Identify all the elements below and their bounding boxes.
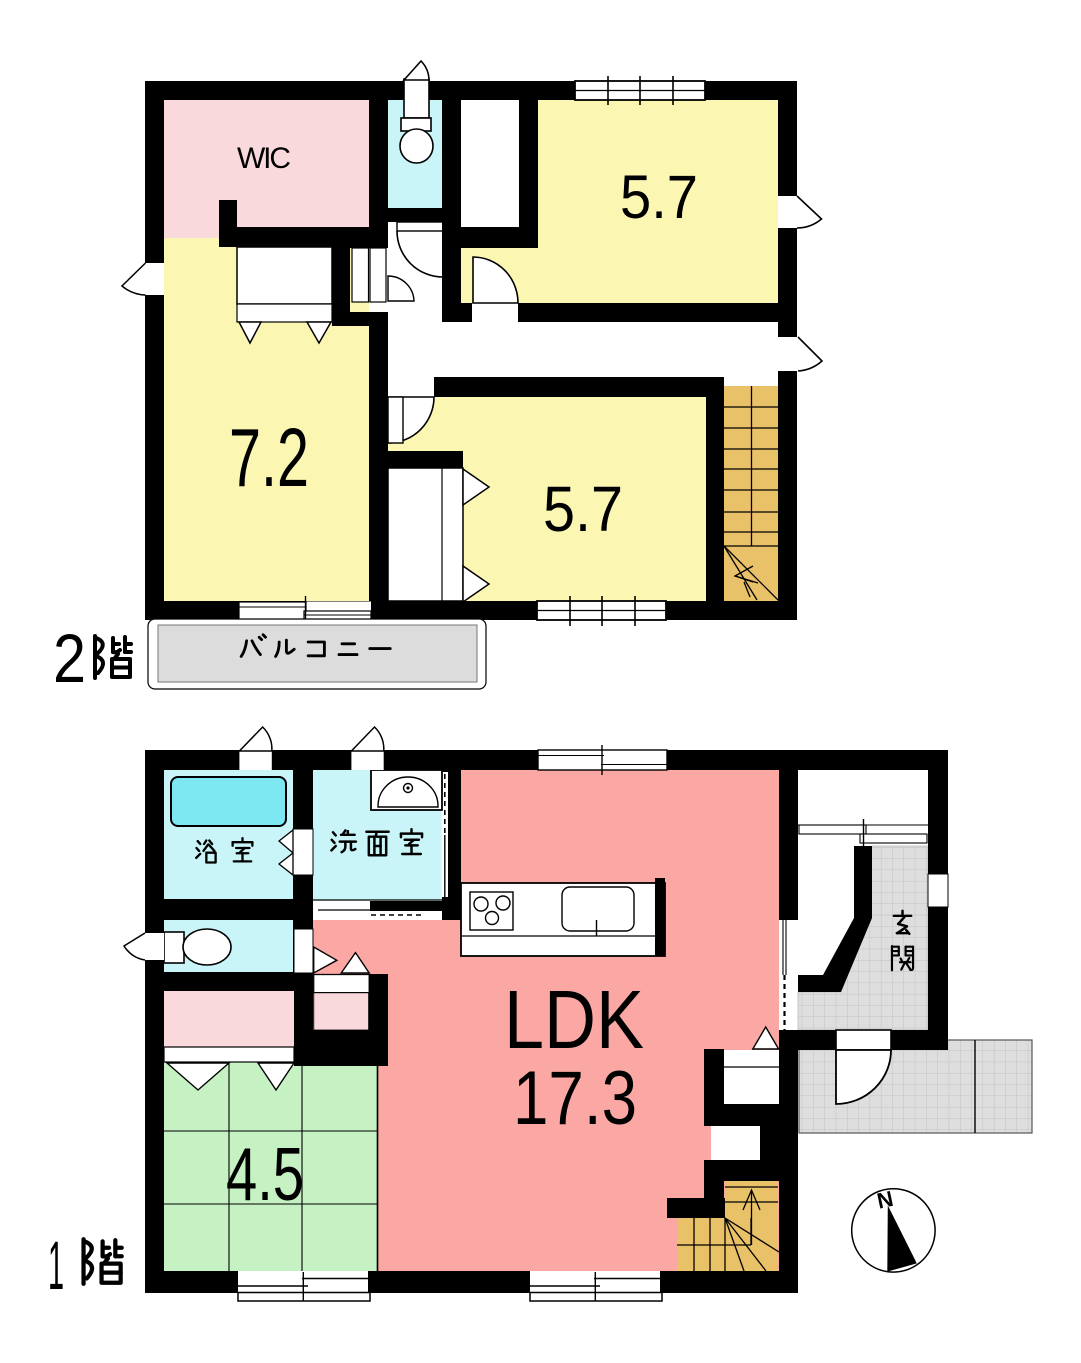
svg-text:1: 1 xyxy=(48,1227,64,1304)
svg-text:LDK: LDK xyxy=(504,973,644,1066)
svg-text:2: 2 xyxy=(53,620,86,697)
svg-text:7.2: 7.2 xyxy=(229,411,309,504)
svg-text:5.7: 5.7 xyxy=(620,163,698,231)
svg-text:WIC: WIC xyxy=(237,142,291,175)
svg-text:4.5: 4.5 xyxy=(226,1132,304,1216)
svg-text:5.7: 5.7 xyxy=(543,473,623,545)
svg-text:17.3: 17.3 xyxy=(513,1056,637,1141)
